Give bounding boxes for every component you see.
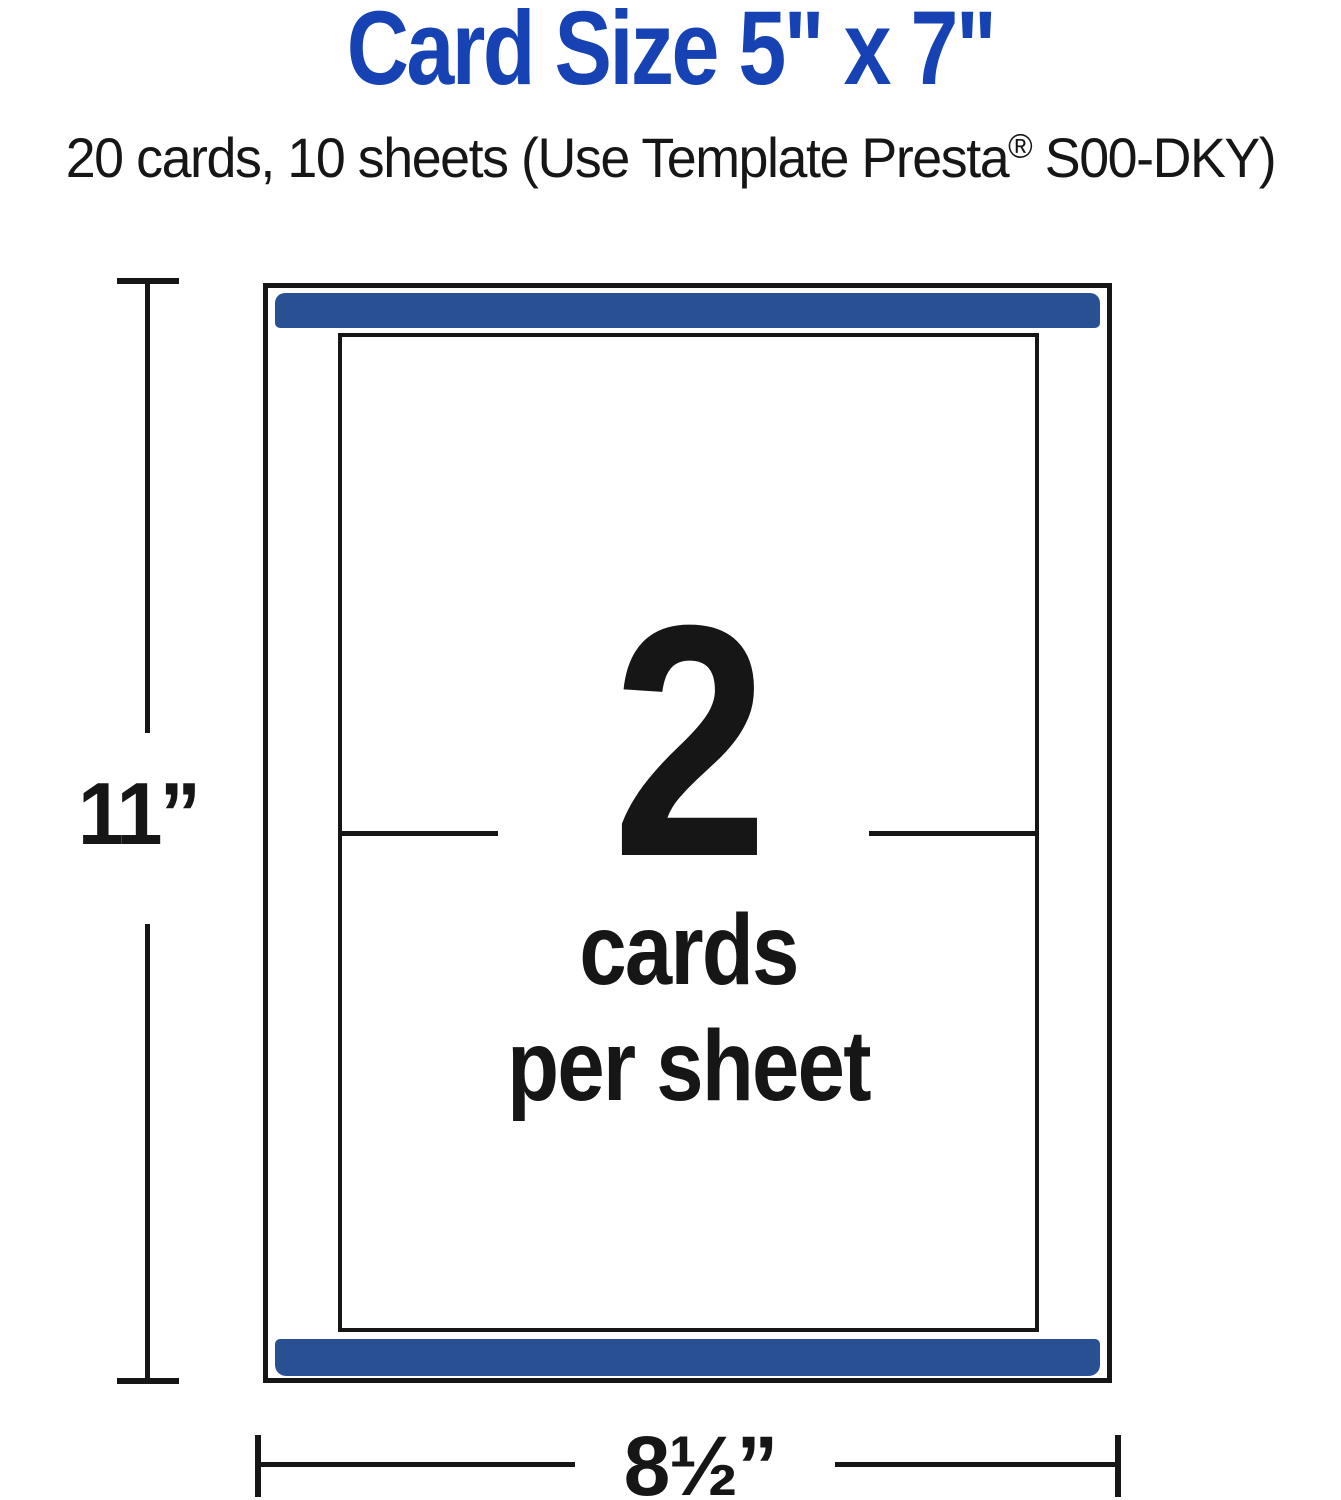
card-count-caption-line1: cards — [391, 895, 987, 1005]
card-count-caption-line2: per sheet — [391, 1011, 987, 1121]
subtitle: 20 cards, 10 sheets (Use Template Presta… — [27, 124, 1314, 191]
subtitle-text: 20 cards, 10 sheets (Use Template Presta — [66, 126, 1008, 189]
width-dimension-line-right — [835, 1462, 1115, 1467]
registered-trademark-symbol: ® — [1008, 127, 1031, 165]
page-title: Card Size 5" x 7" — [121, 0, 1221, 104]
height-dimension-line-upper — [145, 284, 150, 733]
width-dimension-line-left — [261, 1462, 575, 1467]
width-dimension-cap-right — [1115, 1435, 1121, 1497]
subtitle-template-code: S00-DKY) — [1031, 126, 1275, 189]
sheet-height-label: 11” — [63, 770, 213, 858]
height-dimension-line-lower — [145, 924, 150, 1378]
card-count-block: 2 cards per sheet — [391, 592, 987, 1121]
height-dimension-cap-bottom — [117, 1378, 179, 1384]
sheet-top-bar — [275, 293, 1100, 328]
sheet-bottom-bar — [275, 1339, 1100, 1376]
card-count-number: 2 — [391, 592, 987, 889]
product-template-diagram: Card Size 5" x 7" 20 cards, 10 sheets (U… — [0, 0, 1341, 1500]
sheet-width-label: 8½” — [595, 1424, 805, 1500]
